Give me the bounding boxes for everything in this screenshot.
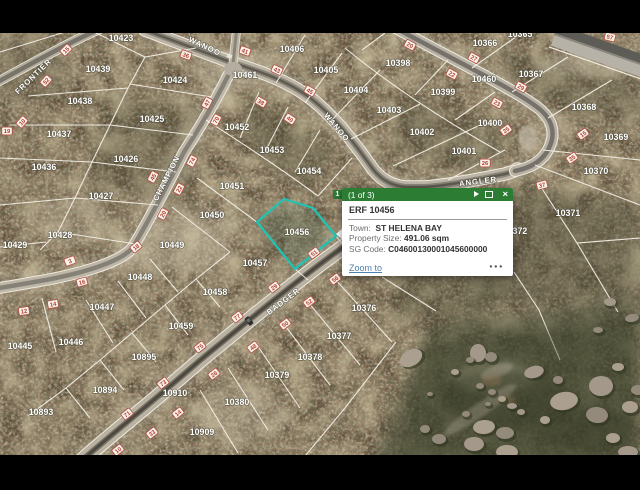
svg-text:10439: 10439 — [86, 64, 111, 74]
svg-text:19: 19 — [4, 129, 11, 135]
svg-text:10449: 10449 — [160, 240, 185, 250]
svg-text:10461: 10461 — [233, 70, 258, 80]
svg-text:10378: 10378 — [298, 352, 323, 362]
svg-text:10379: 10379 — [265, 370, 290, 380]
svg-text:10460: 10460 — [472, 74, 497, 84]
svg-text:10446: 10446 — [59, 337, 84, 347]
svg-text:10424: 10424 — [163, 75, 188, 85]
svg-text:10452: 10452 — [225, 122, 250, 132]
svg-text:26: 26 — [482, 161, 489, 167]
svg-text:10426: 10426 — [114, 154, 139, 164]
svg-text:10400: 10400 — [478, 118, 503, 128]
svg-text:10895: 10895 — [132, 352, 157, 362]
svg-text:10369: 10369 — [604, 132, 629, 142]
svg-text:10367: 10367 — [519, 69, 544, 79]
svg-text:10450: 10450 — [200, 210, 225, 220]
svg-text:10458: 10458 — [203, 287, 228, 297]
svg-text:10403: 10403 — [377, 105, 402, 115]
svg-text:10448: 10448 — [128, 272, 153, 282]
svg-text:10429: 10429 — [3, 240, 28, 250]
svg-text:10401: 10401 — [452, 146, 477, 156]
svg-text:10893: 10893 — [29, 407, 54, 417]
svg-text:10376: 10376 — [352, 303, 377, 313]
svg-text:10447: 10447 — [90, 302, 115, 312]
svg-text:10453: 10453 — [260, 145, 285, 155]
svg-text:10404: 10404 — [344, 85, 369, 95]
svg-text:10456: 10456 — [285, 227, 310, 237]
svg-text:10370: 10370 — [584, 166, 609, 176]
svg-text:10459: 10459 — [169, 321, 194, 331]
svg-text:10406: 10406 — [280, 44, 305, 54]
svg-text:10909: 10909 — [190, 427, 215, 437]
svg-text:10368: 10368 — [572, 102, 597, 112]
svg-text:10423: 10423 — [109, 33, 134, 43]
svg-text:10451: 10451 — [220, 181, 245, 191]
svg-text:10366: 10366 — [473, 38, 498, 48]
svg-text:10454: 10454 — [297, 166, 322, 176]
svg-text:10436: 10436 — [32, 162, 57, 172]
svg-text:10910: 10910 — [163, 388, 188, 398]
svg-text:10437: 10437 — [47, 129, 72, 139]
svg-text:10399: 10399 — [431, 87, 456, 97]
svg-text:10457: 10457 — [243, 258, 268, 268]
svg-text:10428: 10428 — [48, 230, 73, 240]
svg-text:10402: 10402 — [410, 127, 435, 137]
svg-text:10445: 10445 — [8, 341, 33, 351]
svg-text:10427: 10427 — [89, 191, 114, 201]
svg-text:10398: 10398 — [386, 58, 411, 68]
svg-text:10380: 10380 — [225, 397, 250, 407]
svg-text:10377: 10377 — [327, 331, 352, 341]
svg-text:10438: 10438 — [68, 96, 93, 106]
svg-text:10371: 10371 — [556, 208, 581, 218]
svg-text:10894: 10894 — [93, 385, 118, 395]
svg-text:10405: 10405 — [314, 65, 339, 75]
svg-text:10425: 10425 — [140, 114, 165, 124]
